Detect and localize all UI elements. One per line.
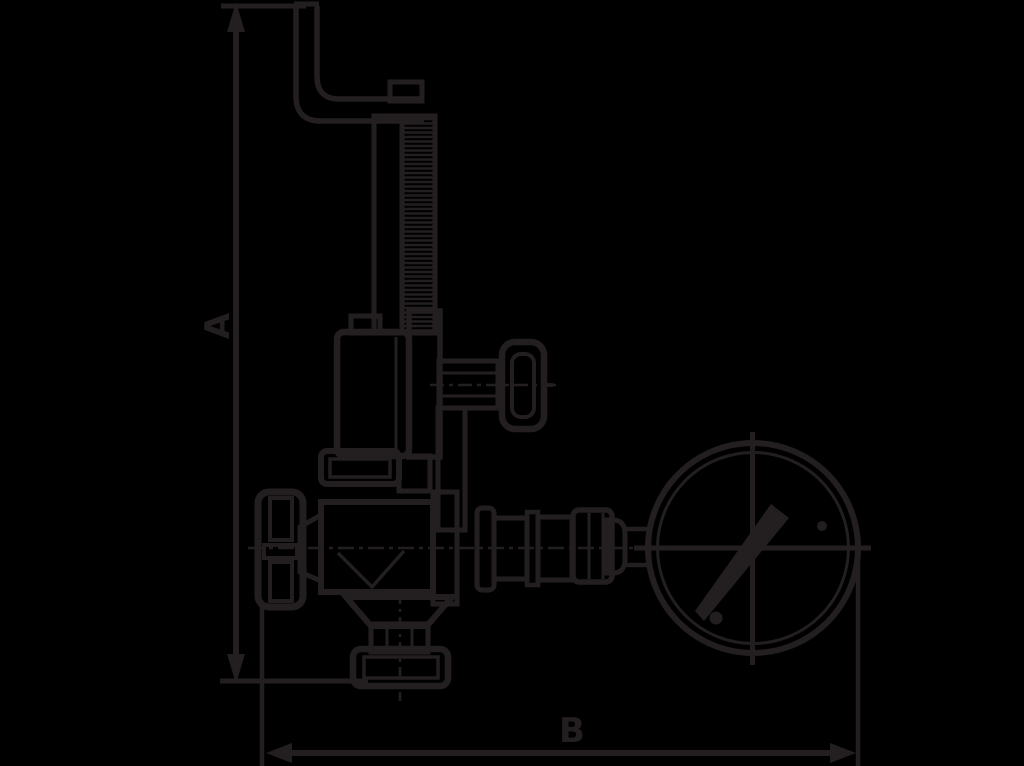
- valve-dimension-drawing: A B: [0, 0, 1024, 766]
- outlet-flange: [353, 624, 448, 686]
- dim-b-arrowhead-right: [830, 743, 856, 763]
- gauge-dot-lower-left: [710, 612, 723, 625]
- spindle-tube: [374, 116, 402, 333]
- housing-shell: [337, 332, 409, 456]
- gauge-needle: [695, 504, 789, 621]
- pressure-gauge: [634, 432, 871, 665]
- dimension-a: A: [198, 2, 368, 684]
- flange-right-piece: [399, 456, 430, 491]
- body-seat-lines: [338, 551, 404, 587]
- dim-b-label: B: [559, 711, 585, 751]
- bonnet-flange: [321, 408, 465, 530]
- side-handwheel: [430, 342, 557, 429]
- front-handwheel-spoke-top: [270, 498, 292, 540]
- technical-drawing-canvas: A B: [0, 0, 1024, 766]
- lever-inner-edge: [317, 6, 424, 99]
- spring-coil-column: [402, 116, 435, 333]
- flange-inner: [330, 459, 390, 477]
- dim-b-arrowhead-left: [266, 743, 292, 763]
- gauge-dot-right: [817, 521, 827, 531]
- dim-a-label: A: [198, 312, 238, 339]
- front-handwheel-spoke-bottom: [270, 562, 292, 601]
- front-handwheel: [258, 492, 303, 607]
- valve-body: [300, 492, 457, 701]
